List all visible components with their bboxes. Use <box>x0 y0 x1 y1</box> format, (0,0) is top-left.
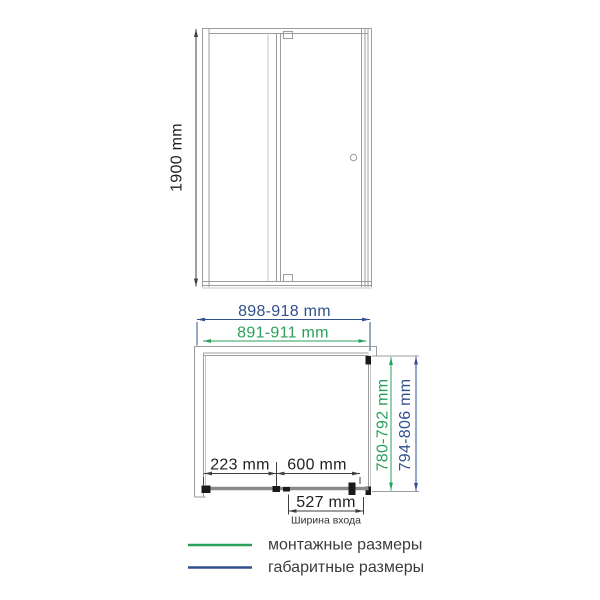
door-knob-icon <box>350 154 356 160</box>
overall-depth-label: 794-806 mm <box>397 379 414 472</box>
front-frame <box>202 29 372 289</box>
mounting-width-dimension: 891-911 mm <box>203 325 367 343</box>
fixed-panel-label: 223 mm <box>210 457 270 474</box>
door-panel-label: 600 mm <box>287 457 347 474</box>
track-left-anchor <box>202 486 211 494</box>
front-view: 1900 mm <box>169 29 372 289</box>
mounting-width-label: 891-911 mm <box>237 325 329 342</box>
bottom-hinge <box>284 275 293 282</box>
track-pivot-block <box>273 486 281 492</box>
diagram-canvas: 1900 mm 898-918 mm 891-911 mm <box>0 0 600 600</box>
entry-width-dimension: 527 mm Ширина входа <box>289 494 364 527</box>
side-panel-top-anchor <box>366 356 372 365</box>
legend: монтажные размеры габаритные размеры <box>188 537 424 577</box>
depth-dimensions: 780-792 mm 794-806 mm <box>372 356 419 492</box>
entry-width-label: 527 mm <box>296 494 356 511</box>
segment-dimensions: 223 mm 600 mm <box>204 457 361 486</box>
plan-outline <box>195 347 377 498</box>
height-label: 1900 mm <box>169 123 186 192</box>
top-hinge <box>284 32 293 39</box>
mounting-depth-label: 780-792 mm <box>375 379 392 472</box>
overall-width-label: 898-918 mm <box>238 303 331 320</box>
entry-width-caption: Ширина входа <box>291 515 361 527</box>
shower-dimension-drawing: 1900 mm 898-918 mm 891-911 mm <box>0 0 600 600</box>
height-dimension: 1900 mm <box>169 29 198 287</box>
plan-view: 898-918 mm 891-911 mm <box>195 303 420 527</box>
track-door-block <box>283 487 290 492</box>
legend-label-mounting: монтажные размеры <box>268 537 422 554</box>
legend-label-overall: габаритные размеры <box>268 559 424 576</box>
